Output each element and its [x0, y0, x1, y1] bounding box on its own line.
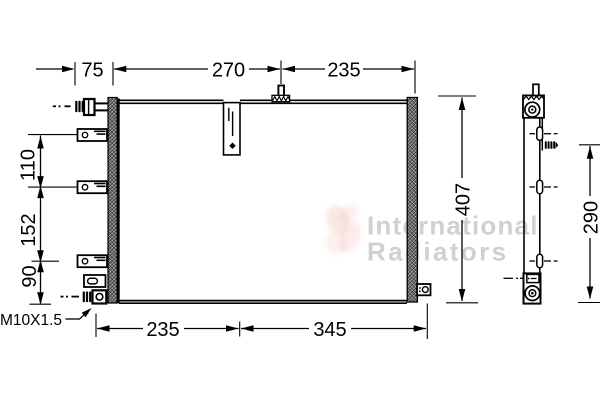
svg-text:270: 270 [212, 59, 245, 81]
svg-text:90: 90 [19, 265, 41, 287]
svg-text:290: 290 [581, 201, 600, 234]
svg-text:235: 235 [327, 59, 360, 81]
svg-text:407: 407 [453, 183, 475, 216]
svg-text:75: 75 [81, 59, 103, 81]
svg-text:152: 152 [18, 213, 40, 246]
svg-text:110: 110 [18, 149, 40, 181]
svg-text:345: 345 [313, 319, 346, 341]
svg-text:M10X1.5: M10X1.5 [0, 312, 62, 329]
svg-text:Radiators: Radiators [367, 237, 509, 267]
svg-text:235: 235 [146, 319, 179, 341]
